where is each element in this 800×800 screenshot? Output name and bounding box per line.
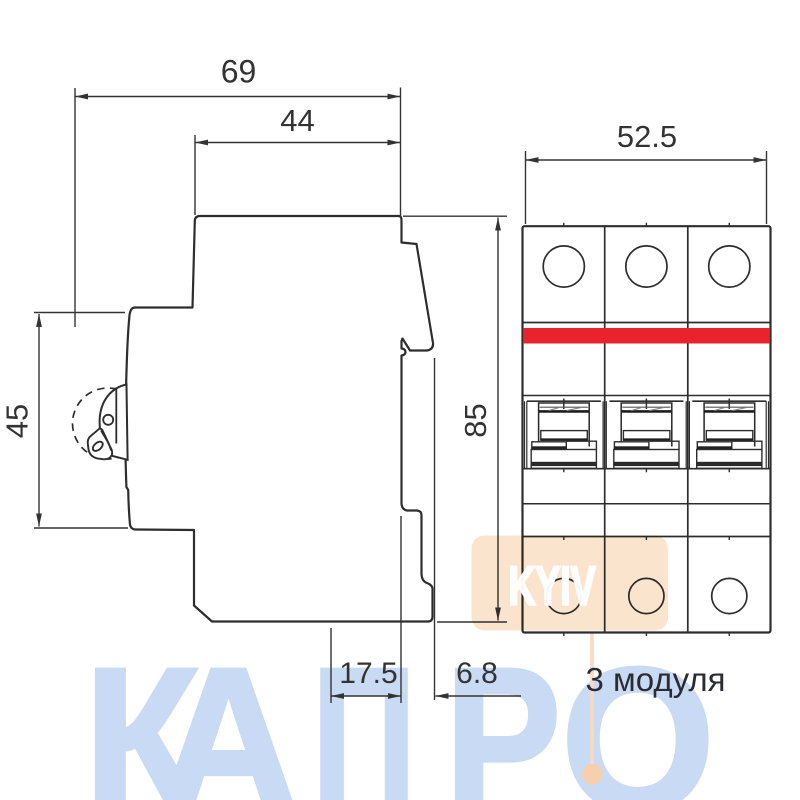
svg-text:69: 69 [221,54,257,90]
svg-text:52.5: 52.5 [617,119,677,154]
svg-text:44: 44 [280,103,314,138]
svg-text:85: 85 [458,403,493,437]
svg-text:А: А [158,626,299,800]
svg-text:17.5: 17.5 [339,657,397,690]
svg-text:KYIV: KYIV [509,555,596,617]
svg-text:Р: Р [445,626,561,800]
svg-text:45: 45 [0,404,35,438]
svg-text:6.8: 6.8 [456,657,498,690]
svg-text:3 модуля: 3 модуля [586,661,726,698]
